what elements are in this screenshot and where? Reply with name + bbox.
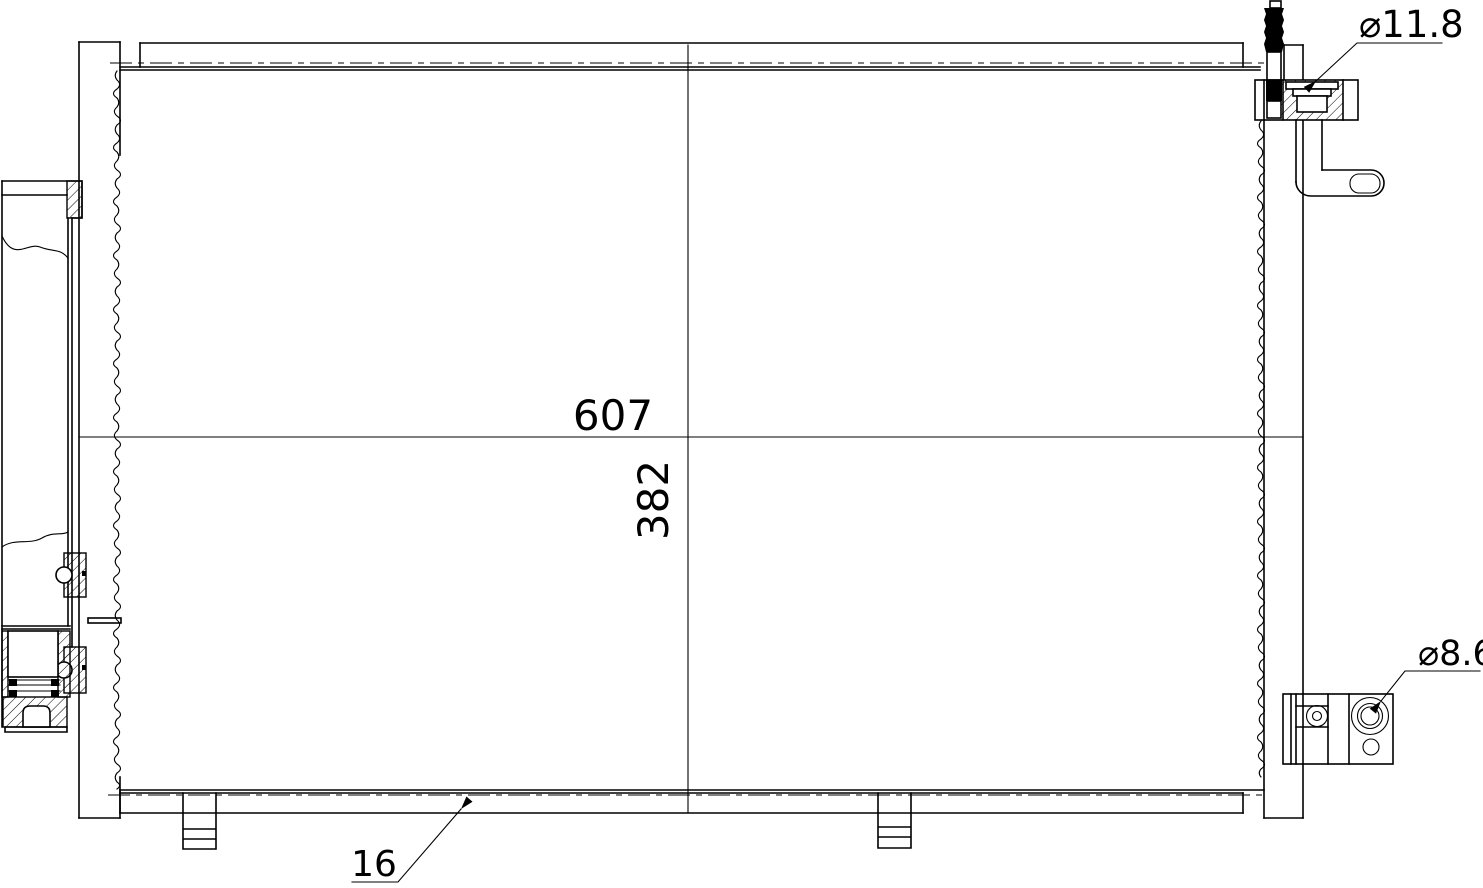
drier-connector-upper <box>56 553 86 597</box>
inlet-leader-line <box>1316 43 1442 81</box>
outlet-leader-line <box>1381 671 1480 701</box>
centerlines <box>79 45 1303 813</box>
drier-bottom-cap <box>3 697 67 732</box>
core-height-dimension: 382 <box>629 460 678 540</box>
drier-top-cap-section <box>67 181 82 218</box>
shell-curve-upper <box>2 236 68 258</box>
fin-edges <box>114 71 1265 789</box>
core-thickness-dimension: 16 <box>351 844 397 885</box>
stud-hex-top <box>1270 1 1281 8</box>
stud-body <box>1267 52 1281 80</box>
condenser-engineering-drawing: 607 382 ⌀11.8 ⌀8.6 16 <box>0 0 1483 888</box>
inlet-diameter-dimension: ⌀11.8 <box>1359 3 1464 46</box>
shell-curve-lower <box>2 532 68 547</box>
mounting-tab-left <box>183 793 216 849</box>
drawing-canvas: 607 382 ⌀11.8 ⌀8.6 16 <box>0 0 1483 888</box>
left-side-plate <box>79 42 121 818</box>
bottom-header <box>108 790 1266 813</box>
outlet-diameter-dimension: ⌀8.6 <box>1418 634 1483 674</box>
inlet-tube-elbow <box>1296 120 1384 196</box>
desiccant-cartridge <box>2 626 70 697</box>
outlet-bracket <box>1283 694 1393 764</box>
top-header <box>110 43 1264 70</box>
left-fin-edge <box>114 71 121 789</box>
mounting-tab-right <box>878 793 911 848</box>
receiver-drier <box>2 181 86 732</box>
threaded-stud <box>1264 8 1284 52</box>
core-width-dimension: 607 <box>573 391 653 440</box>
